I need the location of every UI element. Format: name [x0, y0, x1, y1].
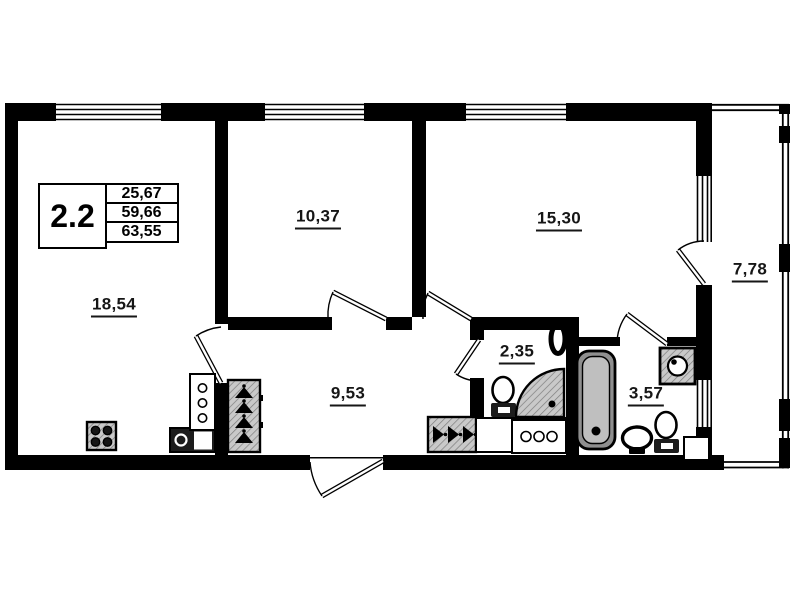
stove-icon [87, 422, 116, 450]
area-label-balcony: 7,78 [732, 260, 768, 283]
title-block: 2.2 25,67 59,66 63,55 [38, 183, 179, 249]
toilet-wc-icon [491, 377, 516, 417]
door-bathroom [617, 314, 667, 344]
washing-machine-icon [660, 348, 695, 384]
window-top-kitchen [466, 105, 566, 120]
wardrobe-hangers-icon [228, 380, 263, 452]
toilet-bathroom-icon [654, 412, 679, 453]
door-balcony [678, 241, 704, 284]
duct-shaft [684, 437, 709, 460]
window-top-bedroom [265, 105, 364, 120]
balcony-frame [711, 104, 790, 470]
window-top-living [56, 105, 161, 120]
kitchen-sink-icon [170, 428, 215, 452]
door-kitchen-living [423, 293, 471, 319]
title-block-values: 25,67 59,66 63,55 [105, 183, 179, 249]
washbasin-icon [623, 427, 652, 454]
refrigerator-icon [190, 374, 215, 430]
door-bedroom [328, 292, 386, 319]
entry-closet-hangers-icon [428, 417, 477, 452]
cabinet-icon [476, 418, 512, 452]
title-block-value-row: 63,55 [105, 221, 179, 243]
area-label-bedroom: 10,37 [295, 207, 341, 230]
corner-shower-icon [516, 369, 564, 417]
chest-of-drawers-icon [512, 420, 566, 453]
bathtub-icon [577, 351, 615, 449]
area-label-living-room: 18,54 [91, 295, 137, 318]
area-label-kitchen-living-room: 15,30 [536, 209, 582, 232]
area-label-hallway: 9,53 [330, 384, 366, 407]
unit-number: 2.2 [38, 183, 107, 249]
door-entrance [310, 458, 383, 496]
window-balcony-upper [698, 176, 712, 242]
window-balcony-lower [698, 380, 712, 427]
door-wc [456, 340, 479, 381]
area-label-bathroom: 3,57 [628, 384, 664, 407]
area-label-wc: 2,35 [499, 342, 535, 365]
interior-walls [215, 121, 696, 455]
floor-plan: 18,54 10,37 15,30 9,53 2,35 3,57 7,78 2.… [0, 0, 799, 600]
